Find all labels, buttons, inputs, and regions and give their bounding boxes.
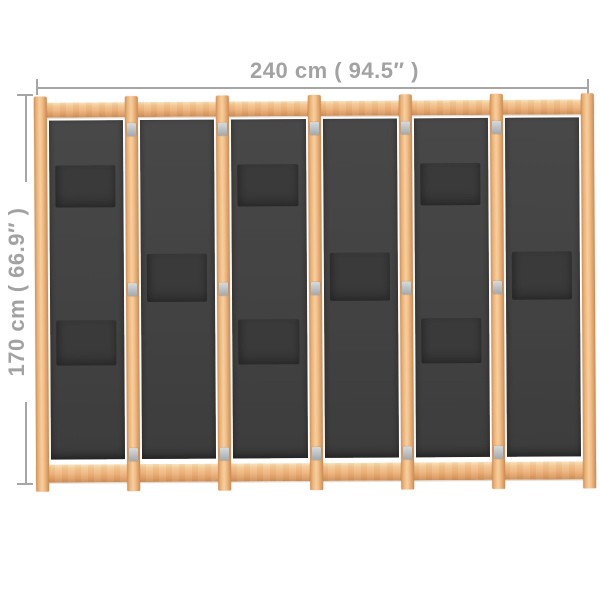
pocket-middle-panel-4 (330, 253, 390, 301)
hinge-joint1-row1 (127, 123, 136, 136)
pocket-middle-panel-2 (147, 254, 207, 302)
hinge-joint2-row1 (218, 123, 227, 136)
hinge-joint4-row3 (403, 446, 412, 459)
frame-stile-1 (34, 97, 49, 492)
hinge-joint3-row2 (311, 282, 320, 295)
product-photo-canvas: 240 cm ( 94.5″ ) 170 cm ( 66.9″ ) (0, 0, 600, 600)
hinge-joint4-row1 (401, 121, 410, 134)
pocket-upper-panel-3 (237, 164, 298, 206)
room-divider (0, 0, 600, 600)
hinge-joint1-row2 (128, 283, 137, 296)
hinge-joint5-row3 (494, 446, 503, 459)
pocket-upper-panel-5 (420, 163, 480, 205)
frame-stile-7 (581, 93, 596, 488)
hinge-joint3-row1 (310, 122, 319, 135)
hinge-joint3-row3 (312, 447, 321, 460)
pocket-lower-panel-1 (56, 320, 116, 365)
hinge-joint4-row2 (402, 281, 411, 294)
hinge-joint1-row3 (129, 448, 138, 461)
pocket-lower-panel-3 (238, 319, 299, 364)
hinge-joint5-row1 (492, 121, 501, 134)
pocket-upper-panel-1 (55, 165, 115, 207)
pocket-middle-panel-6 (512, 251, 572, 299)
hinge-joint2-row3 (220, 448, 229, 461)
hinge-joint5-row2 (493, 281, 502, 294)
pocket-lower-panel-5 (421, 318, 481, 363)
hinge-joint2-row2 (219, 283, 228, 296)
